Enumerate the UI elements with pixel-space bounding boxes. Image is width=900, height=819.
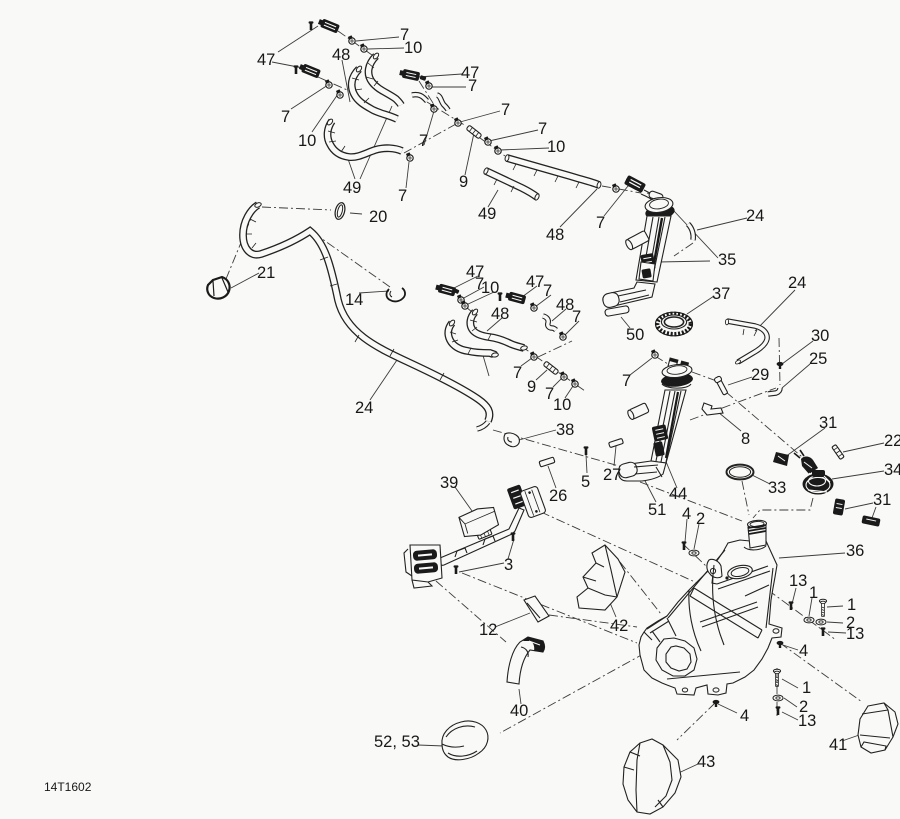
svg-text:13: 13 [846, 625, 864, 643]
svg-text:51: 51 [648, 501, 666, 519]
svg-text:38: 38 [556, 421, 574, 439]
svg-text:14T1602: 14T1602 [44, 780, 92, 794]
svg-text:22: 22 [884, 432, 900, 450]
svg-text:7: 7 [572, 308, 581, 326]
svg-text:29: 29 [751, 366, 769, 384]
svg-text:14: 14 [345, 291, 363, 309]
svg-text:1: 1 [847, 596, 856, 614]
svg-text:13: 13 [789, 572, 807, 590]
svg-text:44: 44 [669, 485, 687, 503]
svg-text:4: 4 [682, 505, 691, 523]
svg-text:52, 53: 52, 53 [374, 733, 420, 751]
svg-text:48: 48 [546, 226, 564, 244]
svg-text:21: 21 [257, 264, 275, 282]
svg-text:43: 43 [697, 753, 715, 771]
svg-text:24: 24 [788, 274, 806, 292]
svg-text:13: 13 [798, 712, 816, 730]
svg-text:39: 39 [440, 474, 458, 492]
svg-text:48: 48 [332, 46, 350, 64]
svg-text:36: 36 [846, 542, 864, 560]
svg-text:26: 26 [549, 487, 567, 505]
svg-text:7: 7 [513, 364, 522, 382]
svg-text:33: 33 [768, 479, 786, 497]
svg-text:1: 1 [802, 679, 811, 697]
svg-text:7: 7 [419, 132, 428, 150]
svg-text:50: 50 [626, 326, 644, 344]
svg-text:30: 30 [811, 327, 829, 345]
svg-text:4: 4 [740, 707, 749, 725]
svg-text:7: 7 [398, 187, 407, 205]
svg-text:7: 7 [543, 282, 552, 300]
svg-text:10: 10 [547, 138, 565, 156]
svg-text:10: 10 [481, 279, 499, 297]
svg-text:31: 31 [873, 491, 891, 509]
svg-text:34: 34 [884, 461, 900, 479]
svg-text:24: 24 [746, 207, 764, 225]
svg-text:5: 5 [581, 473, 590, 491]
svg-text:40: 40 [510, 702, 528, 720]
svg-text:10: 10 [404, 39, 422, 57]
svg-text:47: 47 [257, 51, 275, 69]
svg-text:25: 25 [809, 350, 827, 368]
svg-text:10: 10 [298, 132, 316, 150]
svg-text:10: 10 [553, 396, 571, 414]
svg-text:27: 27 [603, 466, 621, 484]
svg-text:7: 7 [622, 372, 631, 390]
svg-text:31: 31 [819, 414, 837, 432]
svg-text:8: 8 [741, 430, 750, 448]
svg-text:49: 49 [343, 179, 361, 197]
svg-text:7: 7 [596, 214, 605, 232]
svg-text:9: 9 [527, 378, 536, 396]
svg-text:1: 1 [809, 584, 818, 602]
svg-text:7: 7 [501, 101, 510, 119]
svg-text:42: 42 [610, 617, 628, 635]
svg-text:7: 7 [468, 77, 477, 95]
svg-text:41: 41 [829, 736, 847, 754]
svg-text:3: 3 [504, 556, 513, 574]
svg-text:49: 49 [478, 205, 496, 223]
svg-text:35: 35 [718, 251, 736, 269]
svg-text:37: 37 [712, 285, 730, 303]
svg-text:9: 9 [459, 173, 468, 191]
svg-text:47: 47 [526, 273, 544, 291]
svg-text:24: 24 [355, 399, 373, 417]
svg-text:7: 7 [545, 385, 554, 403]
svg-text:7: 7 [538, 120, 547, 138]
svg-text:20: 20 [369, 208, 387, 226]
svg-text:12: 12 [479, 621, 497, 639]
svg-text:2: 2 [696, 510, 705, 528]
svg-text:48: 48 [491, 305, 509, 323]
svg-text:4: 4 [799, 642, 808, 660]
svg-text:7: 7 [281, 108, 290, 126]
